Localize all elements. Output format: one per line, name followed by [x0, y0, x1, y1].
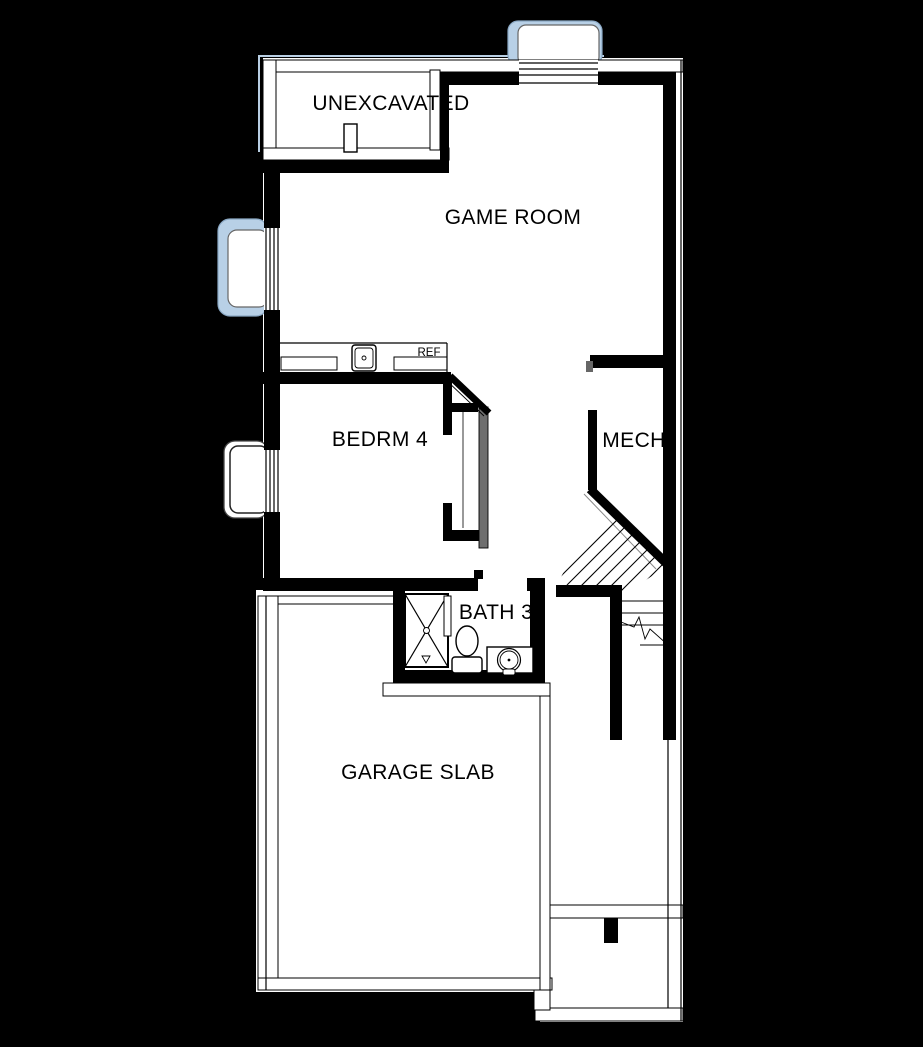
room-label-bedroom-4: BEDRM 4: [332, 428, 428, 451]
refrigerator-label: REF: [418, 347, 441, 359]
wall-segment: [264, 173, 280, 228]
wall-segment: [270, 596, 400, 604]
wall-segment: [263, 160, 449, 173]
window-gap: [519, 60, 598, 85]
room-label-game-room: GAME ROOM: [445, 206, 582, 229]
wall-segment: [263, 60, 683, 72]
wall-segment: [264, 310, 280, 372]
wall-segment: [258, 978, 552, 990]
closet-wall: [479, 407, 488, 548]
wall-segment: [393, 591, 405, 683]
wall-segment: [534, 990, 550, 1010]
room-label-unexcavated: UNEXCAVATED: [312, 92, 469, 115]
floor-plan-canvas: REF: [0, 0, 923, 1047]
wall-segment: [550, 905, 683, 918]
wall-segment: [263, 578, 403, 591]
vanity-sink-drain: [508, 659, 511, 662]
room-label-mechanical: MECH: [602, 429, 665, 452]
door-jamb: [474, 570, 483, 579]
window-left-2: [264, 450, 280, 512]
toilet-bowl: [456, 626, 478, 656]
window-well-left-2-inner: [230, 446, 268, 513]
window-well-top-inner: [518, 25, 599, 65]
wall-segment: [540, 683, 550, 1010]
wall-segment: [588, 410, 597, 490]
floor-right-wing: [540, 740, 683, 1022]
foundation-opening-marker: [344, 124, 357, 152]
shower-drain: [424, 628, 430, 634]
window-well-left-1-inner: [228, 230, 268, 307]
wall-segment: [393, 578, 478, 591]
wall-segment: [452, 403, 478, 412]
wall-segment: [663, 72, 676, 740]
wall-segment: [443, 503, 452, 541]
door-jamb: [586, 361, 593, 372]
wall-segment: [590, 355, 676, 368]
wall-segment: [263, 372, 451, 384]
wall-segment: [447, 72, 519, 85]
window-left-1: [264, 228, 280, 310]
wall-segment: [258, 596, 278, 990]
room-label-bath-3: BATH 3: [459, 601, 533, 624]
wall-segment: [440, 72, 449, 167]
wall-segment: [604, 918, 618, 943]
wall-segment: [264, 384, 280, 450]
wall-segment: [263, 60, 276, 152]
window-top: [519, 60, 598, 85]
wall-segment: [383, 683, 550, 696]
wall-segment: [535, 1008, 683, 1021]
vanity-faucet: [503, 669, 515, 675]
shower-door: [444, 596, 451, 636]
room-label-garage: GARAGE SLAB: [341, 761, 495, 784]
toilet-tank: [452, 657, 482, 673]
wall-segment: [610, 585, 622, 740]
